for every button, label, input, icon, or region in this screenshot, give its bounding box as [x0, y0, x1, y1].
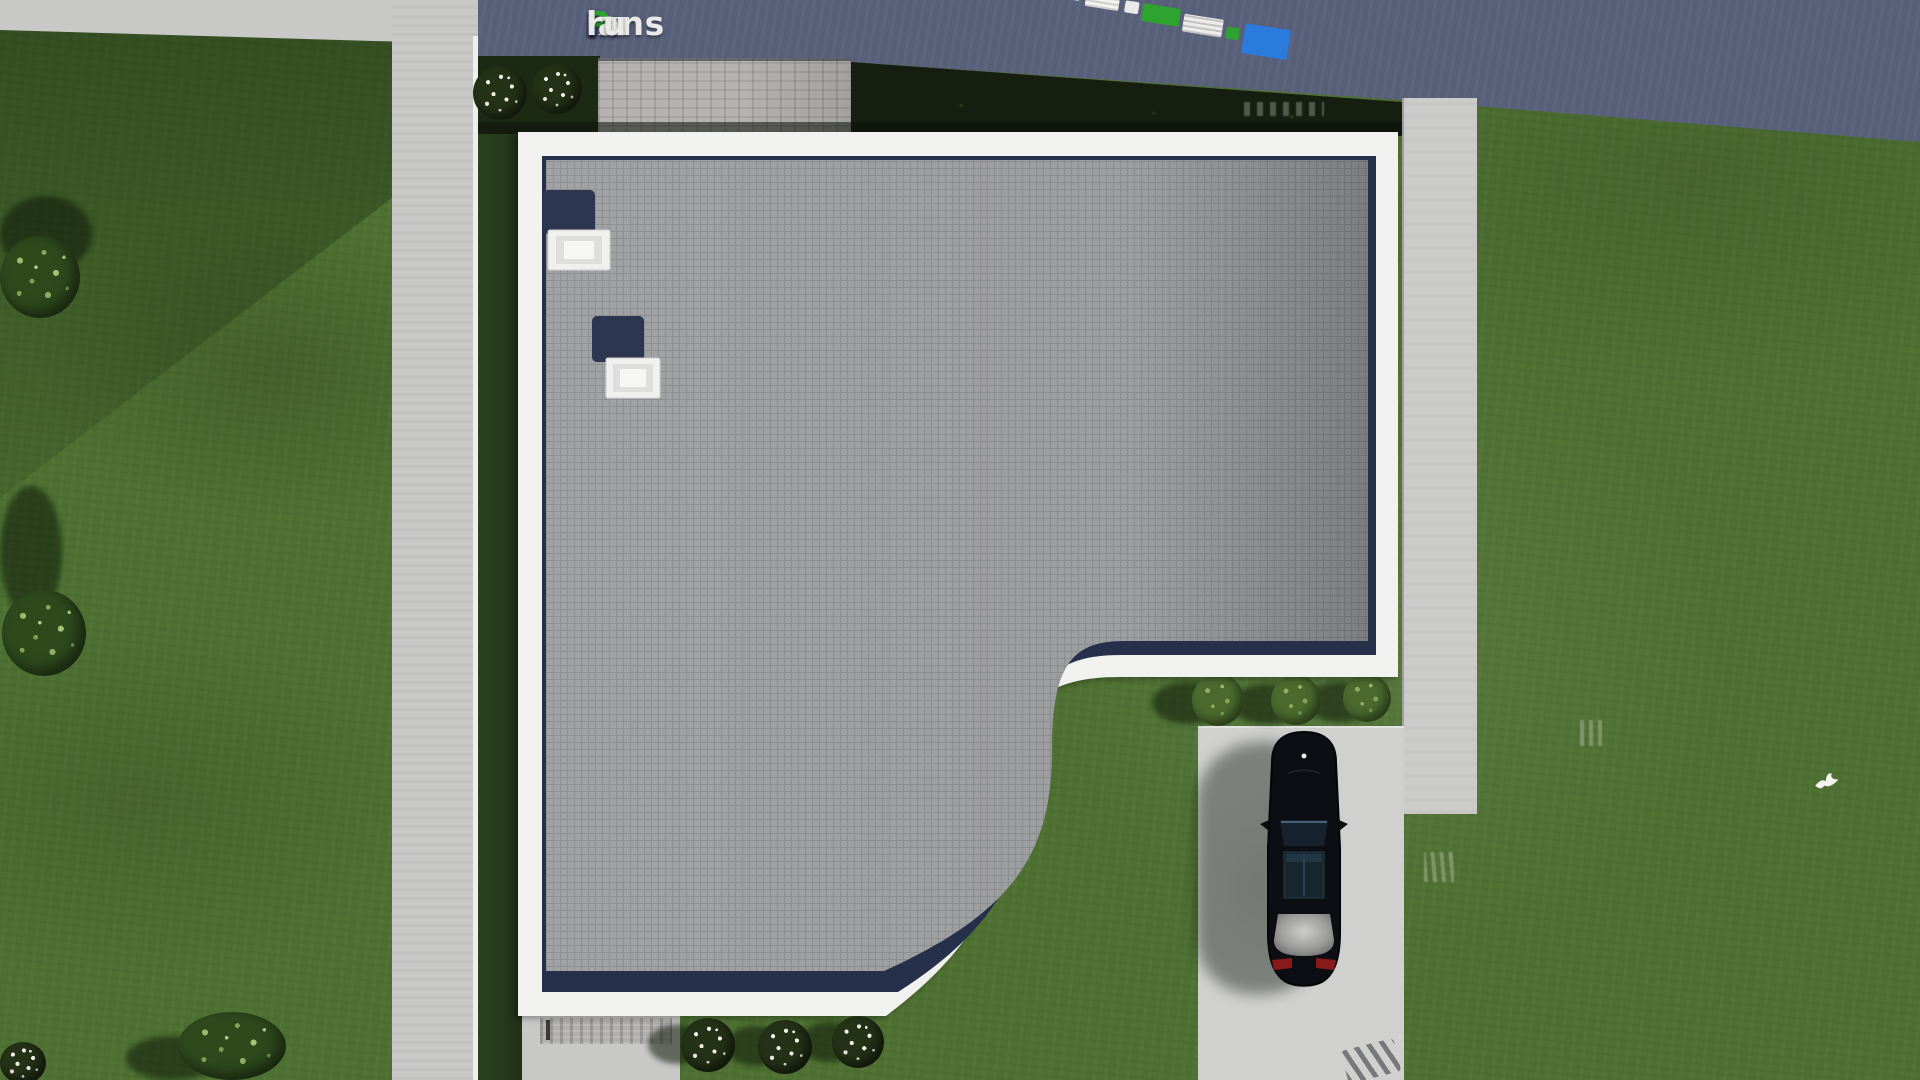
- car-windshield: [1280, 820, 1328, 846]
- flying-bird: [1812, 770, 1844, 796]
- site-plan-render: FixPlans.ru: [0, 0, 1920, 1080]
- flower-bush: [681, 1018, 735, 1072]
- watermark-remnant: [1424, 852, 1454, 882]
- flower-bush: [758, 1020, 812, 1074]
- car-rear-window: [1274, 914, 1334, 956]
- flat-roof-building: [0, 0, 1920, 1080]
- parked-car: [1248, 728, 1360, 990]
- watermark-block: [1182, 14, 1224, 38]
- car-taillight-right: [1316, 958, 1336, 970]
- logo-segment: ru: [586, 4, 627, 43]
- car-mirror-left: [1260, 820, 1269, 831]
- car-mirror-right: [1339, 820, 1348, 831]
- car-taillight-left: [1272, 958, 1292, 970]
- watermark-remnant: [1580, 720, 1602, 746]
- watermark-remnant: [1244, 102, 1324, 116]
- flower-bush: [832, 1016, 884, 1068]
- watermark-block: [1046, 0, 1082, 1]
- watermark-block: [1141, 3, 1181, 27]
- watermark-block: [1124, 0, 1140, 14]
- watermark-block: [1225, 26, 1240, 40]
- car-antenna: [1302, 754, 1307, 759]
- watermark-block: [1084, 0, 1120, 11]
